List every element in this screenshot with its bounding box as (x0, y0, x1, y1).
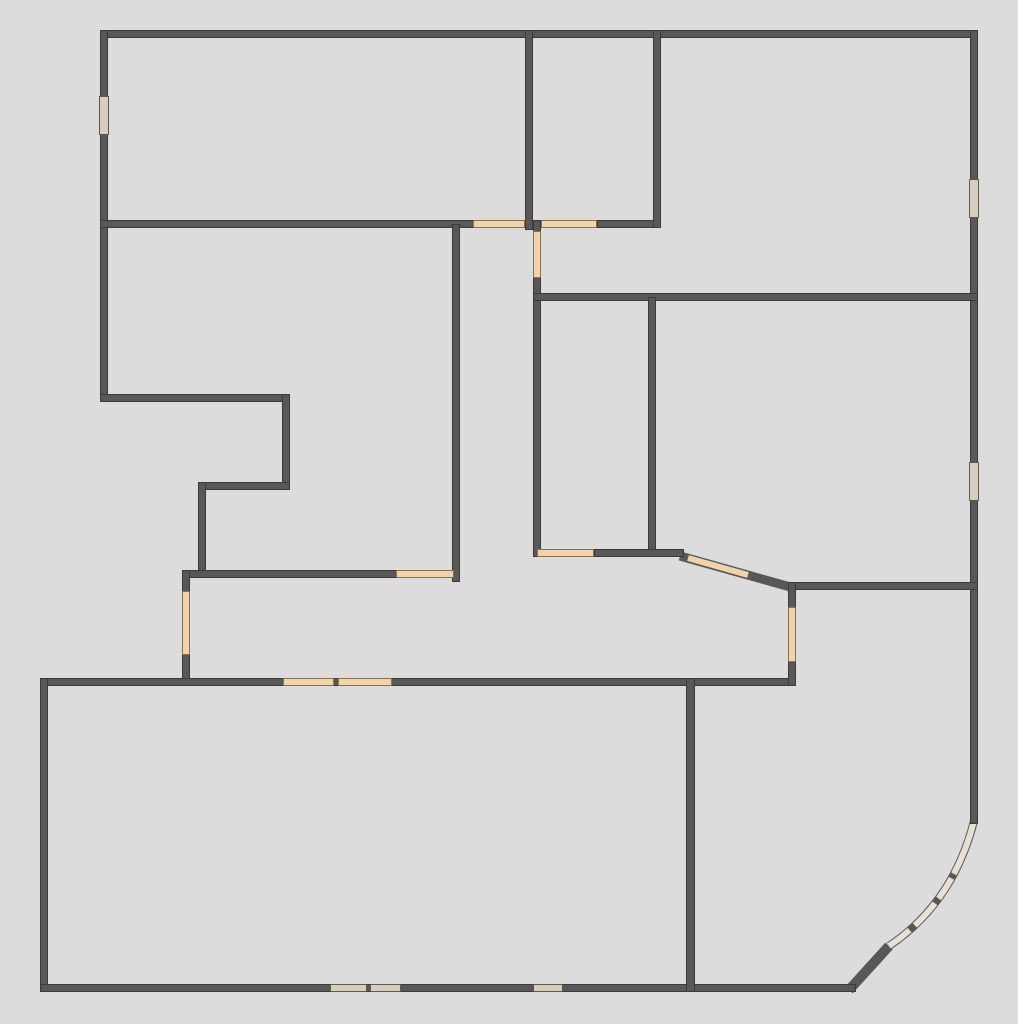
wall-top-mid-room-west (525, 30, 533, 230)
window-left-wall (99, 96, 109, 135)
wall-upper-corridor-west (100, 220, 475, 228)
wall-mid-room-south (594, 549, 684, 557)
wall-outer-left-lower (40, 678, 48, 992)
window-bottom-room-north-1 (283, 678, 334, 686)
door-diagonal-mid (688, 558, 748, 575)
wall-center-vertical-left (452, 224, 460, 582)
wall-step-vertical-2 (198, 482, 206, 578)
wall-outer-bottom (40, 984, 856, 992)
window-bottom-wall-1 (330, 984, 367, 992)
wall-step-horizontal-1 (100, 394, 290, 402)
door-mid-room-south (537, 549, 594, 557)
window-right-wall-lower (969, 462, 979, 501)
wall-upper-corridor-east (597, 220, 657, 228)
wall-mid-room-divider (648, 297, 656, 557)
wall-step-horizontal-2 (198, 482, 290, 490)
wall-curve-corner-base (889, 821, 974, 946)
door-east-room-west (788, 607, 796, 662)
wall-outer-right (970, 30, 978, 824)
wall-top-mid-room-east (653, 30, 661, 228)
floor-plan (0, 0, 1018, 1024)
wall-east-room-south (790, 582, 978, 590)
wall-outer-left-upper (100, 30, 108, 402)
curved-walls-layer (0, 0, 1018, 1024)
door-corridor-right (541, 220, 597, 228)
window-bottom-wall-3 (533, 984, 563, 992)
door-entry-vertical (182, 591, 190, 655)
door-center-vertical (533, 231, 541, 278)
window-bottom-room-north-2 (338, 678, 392, 686)
door-hall-south (396, 570, 454, 578)
window-bottom-wall-2 (370, 984, 401, 992)
window-curve-corner-glass (889, 821, 974, 946)
wall-right-room-north (533, 293, 978, 301)
wall-bottom-room-north (40, 678, 796, 686)
wall-step-vertical-1 (282, 394, 290, 490)
door-corridor-left (473, 220, 525, 228)
wall-outer-top (100, 30, 978, 38)
window-right-wall-upper (969, 179, 979, 218)
wall-bottom-rooms-divider (686, 678, 695, 992)
